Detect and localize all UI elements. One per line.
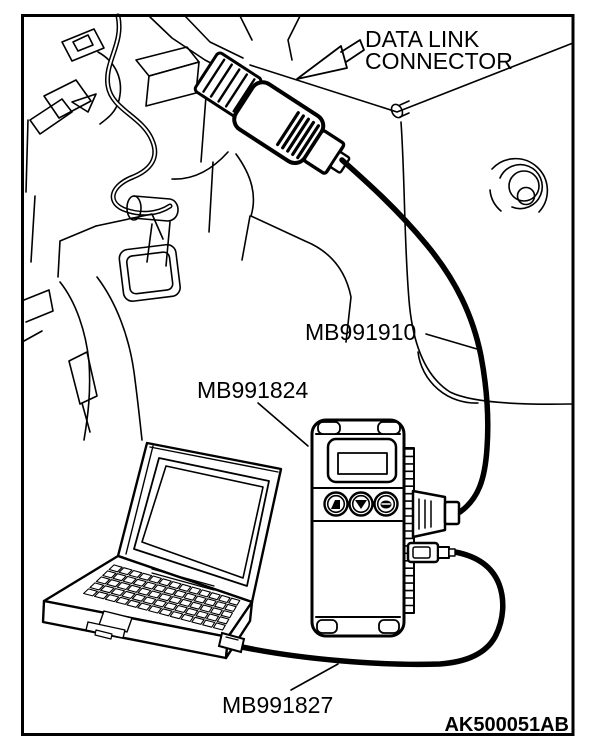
scan-tool-drawing bbox=[312, 420, 459, 636]
leader-mb991824 bbox=[258, 403, 308, 446]
leader-mb991910 bbox=[426, 334, 477, 349]
label-mb991827: MB991827 bbox=[222, 692, 333, 718]
scan-tool-buttons bbox=[325, 493, 398, 516]
figure-page: DATA LINK CONNECTOR MB991910 MB991824 MB… bbox=[0, 0, 608, 750]
scan-tool-lower-port bbox=[408, 543, 455, 562]
scan-tool-upper-port bbox=[413, 491, 459, 537]
label-mb991824: MB991824 bbox=[197, 377, 308, 403]
technical-diagram: DATA LINK CONNECTOR MB991910 MB991824 MB… bbox=[0, 0, 608, 750]
pointer-arrow-icon bbox=[297, 40, 364, 79]
trim-rings bbox=[490, 159, 547, 212]
laptop-drawing bbox=[43, 443, 281, 658]
label-data-link-line2: CONNECTOR bbox=[365, 48, 513, 74]
label-mb991910: MB991910 bbox=[305, 319, 416, 345]
dash-screw bbox=[389, 101, 409, 120]
leader-mb991827 bbox=[291, 664, 338, 690]
figure-code: AK500051AB bbox=[444, 714, 569, 736]
